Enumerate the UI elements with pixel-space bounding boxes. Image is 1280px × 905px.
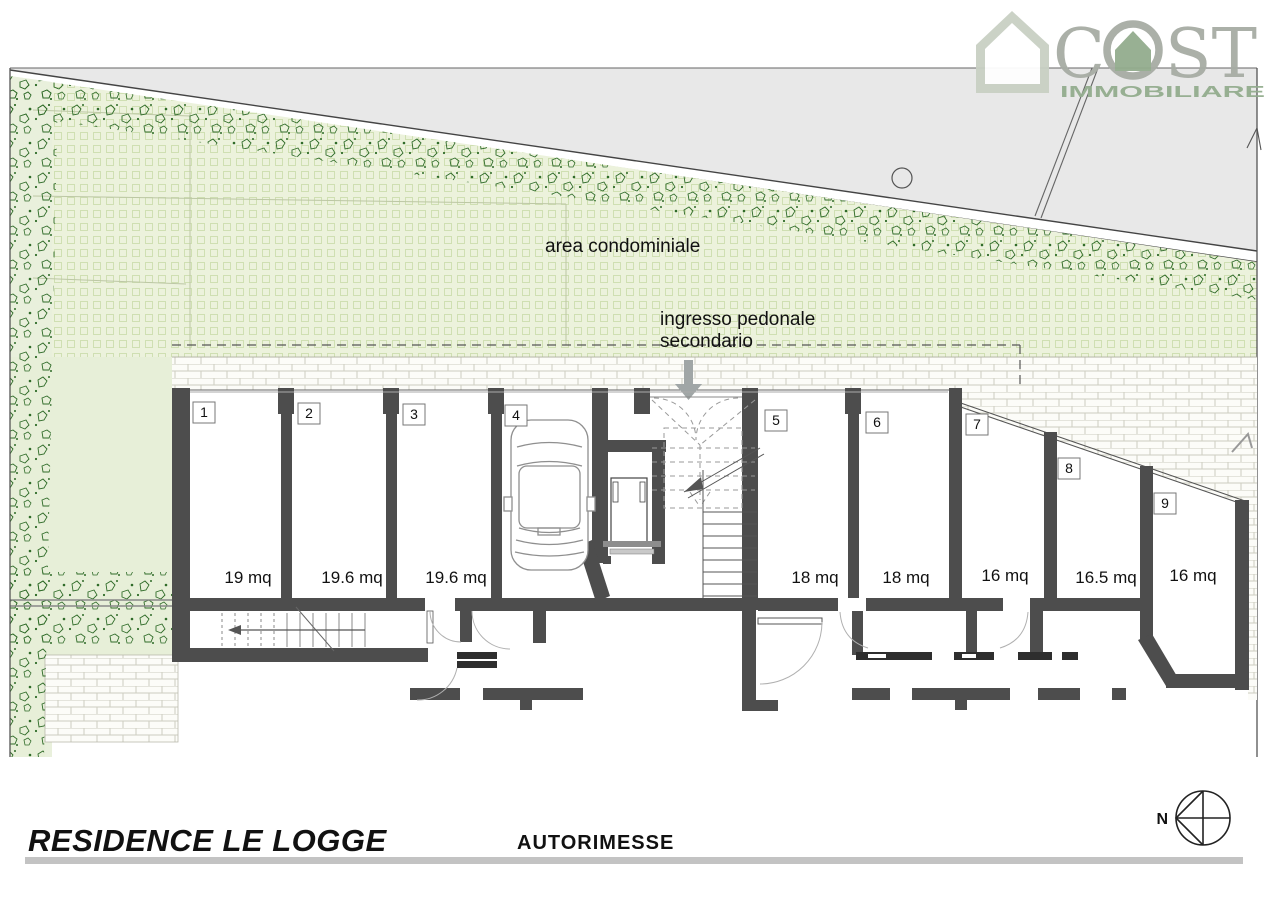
garage-number-box: 8 [1058,458,1080,479]
compass-icon [1176,791,1230,845]
garage-area-label: 18 mq [791,568,838,587]
garage-number: 8 [1065,460,1073,476]
garden-path [45,655,178,742]
garage-number: 6 [873,414,881,430]
garage-number-box: 4 [505,405,527,426]
garage-number-box: 7 [966,414,988,435]
garage-number: 9 [1161,495,1169,511]
logo-o-house-icon [1107,24,1159,76]
floor-plan-drawing: 1 2 3 4 5 6 7 8 [0,0,1280,905]
garage-area-label: 16 mq [1169,566,1216,585]
garage-area-label: 19.6 mq [321,568,382,587]
car-icon [504,420,595,570]
garage-area-label: 18 mq [882,568,929,587]
area-condominiale-label: area condominiale [545,236,700,257]
logo-brand-c: C [1053,15,1105,94]
garage-number-box: 5 [765,410,787,431]
garage-number-box: 2 [298,403,320,424]
manhole-circle [892,168,912,188]
footer-rule [25,857,1243,864]
project-title: RESIDENCE LE LOGGE [28,823,387,858]
floor-plan-sheet: 1 2 3 4 5 6 7 8 [0,0,1280,905]
compass-north-label: N [1156,811,1168,828]
garage-number-box: 3 [403,404,425,425]
sheet-title: AUTORIMESSE [517,832,674,854]
garage-area-label: 16.5 mq [1075,568,1136,587]
logo: C ST IMMOBILIARE [976,11,1266,101]
garage-number-box: 1 [193,402,215,423]
ingresso-pedonale-label-line1: ingresso pedonale [660,309,815,330]
garage-number: 5 [772,412,780,428]
hedge-row [10,572,172,648]
ingresso-pedonale-label-line2: secondario [660,331,753,352]
garage-area-label: 19 mq [224,568,271,587]
garage-number: 3 [410,406,418,422]
garage-number-box: 6 [866,412,888,433]
garage-number-box: 9 [1154,493,1176,514]
garage-number: 7 [973,416,981,432]
garage-number: 1 [200,404,208,420]
garage-number: 4 [512,407,520,423]
logo-tagline: IMMOBILIARE [1060,84,1266,101]
garage-area-label: 19.6 mq [425,568,486,587]
garage-number: 2 [305,405,313,421]
garage-area-label: 16 mq [981,566,1028,585]
logo-brand-st: ST [1165,15,1257,94]
